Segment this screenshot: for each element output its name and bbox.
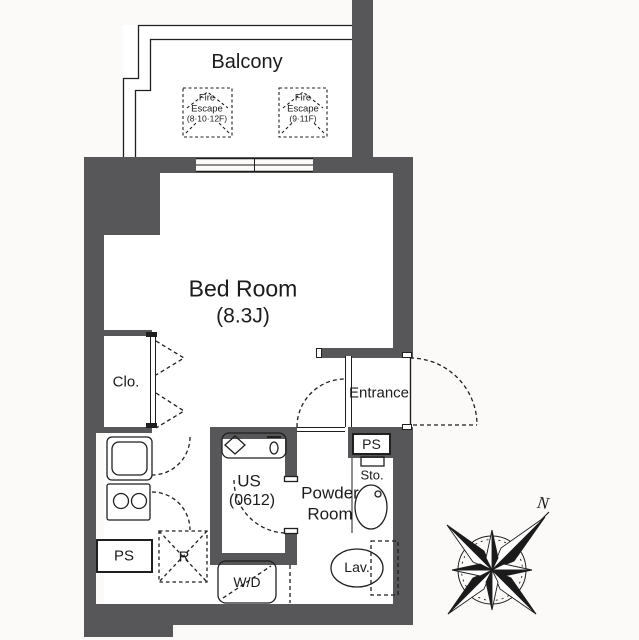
balcony-label: Balcony: [211, 52, 282, 72]
bedroom-name-label: Bed Room: [189, 278, 298, 301]
compass-north-label: N: [536, 494, 550, 512]
closet-folding-doors: [156, 341, 184, 428]
entrance-door: [410, 358, 477, 425]
floor-plan: Balcony Fire Escape (8·10·12F) Fire Esca…: [0, 0, 639, 640]
window: [196, 158, 313, 172]
washbasin: [355, 485, 387, 529]
pipe-space-left-label: PS: [114, 549, 134, 564]
entrance-label: Entrance: [349, 386, 409, 401]
fire-escape-right-label: Fire Escape (9·11F): [287, 94, 319, 125]
compass-rose: [447, 512, 549, 614]
bedroom-size-label: (8.3J): [216, 306, 270, 327]
kitchen-door-swings: [152, 437, 190, 530]
powder-room-label-line2: Room: [307, 506, 352, 523]
washer-dryer-label: W/D: [233, 575, 260, 589]
unit-bath-size-label: (0612): [229, 493, 275, 509]
fire-escape-left-label: Fire Escape (8·10·12F): [187, 94, 227, 125]
lavatory-label: Lav.: [344, 560, 369, 574]
refrigerator-label: R: [179, 550, 190, 565]
storage-label: Sto.: [360, 469, 383, 482]
closet-label: Clo.: [113, 375, 140, 390]
bathtub: [222, 433, 286, 458]
fire-escape-left-line3: (8·10·12F): [187, 115, 227, 125]
pipe-space-entrance-label: PS: [362, 437, 381, 451]
fire-escape-right-line3: (9·11F): [287, 115, 319, 125]
unit-bath-name-label: US: [237, 473, 261, 490]
powder-room-label-line1: Powder: [301, 485, 359, 502]
bedroom-door-swing: [297, 379, 345, 427]
plan-linework: [0, 0, 639, 640]
stove: [107, 484, 150, 520]
kitchen-sink: [107, 437, 152, 480]
